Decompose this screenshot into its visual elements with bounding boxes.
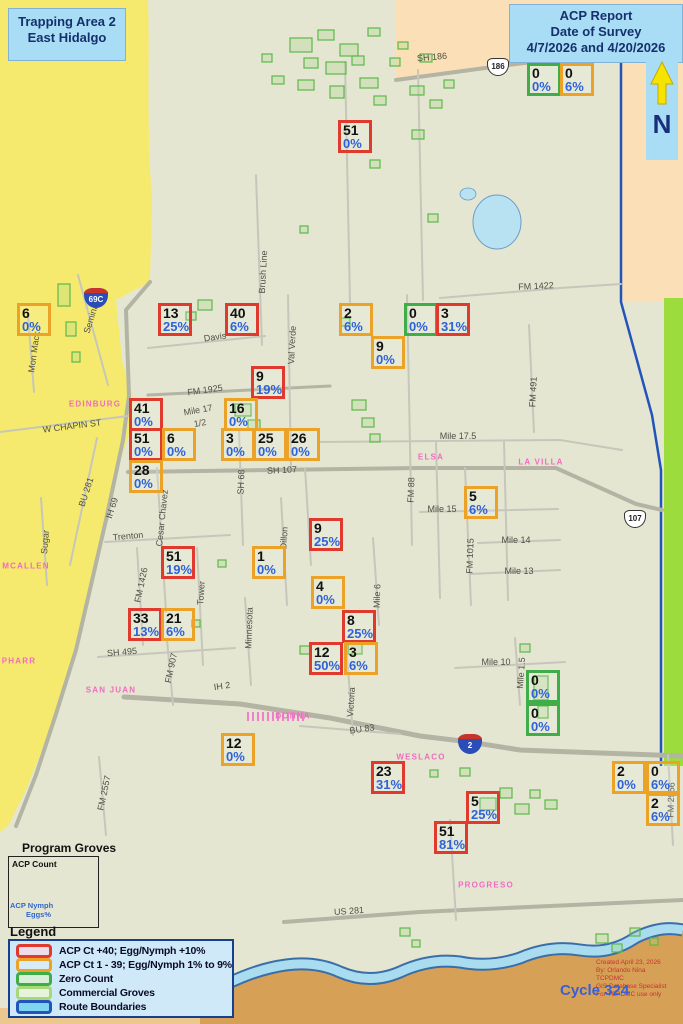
grove-polygon (412, 940, 420, 947)
egg-nymph-pct: 0% (531, 687, 557, 701)
egg-nymph-pct: 0% (167, 445, 193, 459)
egg-nymph-pct: 19% (166, 563, 192, 577)
grove-polygon (58, 284, 70, 306)
acp-count: 12 (314, 645, 340, 659)
trap-box-red: 1250% (309, 642, 343, 675)
trap-box-orange: 10% (252, 546, 286, 579)
trap-box-red: 925% (309, 518, 343, 551)
trap-box-green: 00% (526, 670, 560, 703)
grove-polygon (290, 38, 312, 52)
grove-polygon (66, 322, 76, 336)
legend-label: Zero Count (59, 973, 113, 985)
area-title-line1: Trapping Area 2 (9, 14, 125, 30)
legend-item-route: Route Boundaries (16, 1000, 232, 1014)
trap-box-red: 410% (129, 398, 163, 431)
acp-count: 51 (166, 549, 192, 563)
credits-line: By: Orlando Nina (596, 967, 682, 975)
egg-nymph-pct: 25% (314, 535, 340, 549)
trap-box-red: 5181% (434, 821, 468, 854)
legend-label: Route Boundaries (59, 1001, 146, 1013)
credits-line: Created April 23, 2026 (596, 959, 682, 967)
grove-polygon (400, 928, 410, 936)
report-dates: 4/7/2026 and 4/20/2026 (510, 40, 682, 56)
grove-polygon (398, 42, 408, 49)
trap-box-red: 3313% (128, 608, 162, 641)
egg-nymph-pct: 0% (316, 593, 342, 607)
acp-count: 1 (257, 549, 283, 563)
legend-swatch-green (16, 972, 52, 986)
grove-polygon (596, 934, 608, 943)
cycle-label: Cycle 324 (560, 982, 629, 999)
report-line1: ACP Report (510, 8, 682, 24)
city-label: ELSA (418, 453, 444, 462)
legend-label: ACP Ct 1 - 39; Egg/Nymph 1% to 9% (59, 959, 232, 971)
grove-polygon (360, 78, 378, 88)
egg-nymph-pct: 0% (291, 445, 317, 459)
egg-nymph-pct: 0% (22, 320, 48, 334)
trap-box-red: 510% (338, 120, 372, 153)
road-label: Mile 10 (481, 657, 510, 667)
egg-nymph-pct: 6% (166, 625, 192, 639)
grove-polygon (500, 788, 512, 798)
egg-nymph-pct: 0% (617, 778, 643, 792)
road-label: US 281 (334, 905, 365, 917)
egg-nymph-pct: 6% (230, 320, 256, 334)
trap-box-orange: 26% (646, 793, 680, 826)
egg-nymph-pct: 0% (226, 445, 252, 459)
inset-eggs-label: Eggs% (26, 910, 51, 919)
grove-polygon (272, 76, 284, 84)
trap-box-red: 331% (436, 303, 470, 336)
grove-polygon (410, 86, 424, 95)
egg-nymph-pct: 0% (134, 415, 160, 429)
trap-box-orange: 280% (129, 460, 163, 493)
road-label: Minnesota (243, 607, 254, 649)
acp-count: 51 (343, 123, 369, 137)
grove-polygon (300, 226, 308, 233)
trap-box-orange: 90% (371, 336, 405, 369)
egg-nymph-pct: 0% (258, 445, 284, 459)
road-label: SH 107 (267, 464, 298, 476)
road-label: FM 491 (527, 377, 539, 408)
city-label: PROGRESO (458, 881, 514, 890)
acp-count: 0 (532, 66, 558, 80)
acp-count: 28 (134, 463, 160, 477)
acp-count: 25 (258, 431, 284, 445)
road-label: FM 1422 (518, 280, 554, 292)
acp-count: 33 (133, 611, 159, 625)
acp-count: 0 (531, 673, 557, 687)
city-label: PHARR (2, 657, 36, 666)
legend-item-red: ACP Ct +40; Egg/Nymph +10% (16, 944, 232, 958)
legend-swatch-grove (16, 986, 52, 1000)
egg-nymph-pct: 6% (651, 810, 677, 824)
grove-polygon (368, 28, 380, 36)
egg-nymph-pct: 13% (133, 625, 159, 639)
trap-box-orange: 06% (560, 63, 594, 96)
grove-polygon (318, 30, 334, 40)
road-label: Mile 15 (427, 504, 456, 514)
acp-count: 0 (651, 764, 677, 778)
egg-nymph-pct: 31% (441, 320, 467, 334)
program-groves-title: Program Groves (22, 841, 116, 855)
road-label: Val Verde (286, 326, 298, 365)
trap-box-green: 00% (527, 63, 561, 96)
trap-box-orange: 26% (339, 303, 373, 336)
grove-polygon (330, 86, 344, 98)
acp-count: 12 (226, 736, 252, 750)
egg-nymph-pct: 0% (409, 320, 435, 334)
report-line2: Date of Survey (510, 24, 682, 40)
egg-nymph-pct: 19% (256, 383, 282, 397)
road-label: Mile 14 (501, 535, 530, 545)
trap-box-red: 1325% (158, 303, 192, 336)
road-label: Mile 6 (372, 584, 383, 608)
legend-box: ACP Ct +40; Egg/Nymph +10%ACP Ct 1 - 39;… (8, 939, 234, 1018)
road-label: Victoria (345, 687, 357, 717)
grove-polygon (262, 54, 272, 62)
grove-polygon (304, 58, 318, 68)
trap-box-orange: 36% (344, 642, 378, 675)
acp-count: 6 (22, 306, 48, 320)
legend-swatch-red (16, 944, 52, 958)
grove-polygon (340, 44, 358, 56)
acp-count: 0 (531, 706, 557, 720)
road-label: Mile 13 (504, 566, 533, 576)
city-label: SAN JUAN (86, 686, 137, 695)
north-label: N (646, 111, 678, 137)
acp-count: 0 (409, 306, 435, 320)
grove-polygon (298, 80, 314, 90)
egg-nymph-pct: 25% (347, 627, 373, 641)
trap-box-orange: 216% (161, 608, 195, 641)
acp-count: 3 (349, 645, 375, 659)
acp-count: 5 (469, 489, 495, 503)
area-title-box: Trapping Area 2 East Hidalgo (8, 8, 126, 61)
egg-nymph-pct: 25% (471, 808, 497, 822)
grove-polygon (370, 160, 380, 168)
acp-count: 8 (347, 613, 373, 627)
egg-nymph-pct: 0% (229, 415, 255, 429)
acp-count: 2 (344, 306, 370, 320)
grove-polygon (545, 800, 557, 809)
legend-item-grove: Commercial Groves (16, 986, 232, 1000)
acp-report-map: SH 186FM 1422SeminaryMon MackBrush LineV… (0, 0, 683, 1024)
acp-count: 3 (226, 431, 252, 445)
north-arrow-icon (646, 58, 678, 106)
trap-box-red: 525% (466, 791, 500, 824)
grove-polygon (428, 214, 438, 222)
acp-count: 2 (651, 796, 677, 810)
acp-count: 51 (439, 824, 465, 838)
grove-polygon (444, 80, 454, 88)
city-label: LA VILLA (518, 458, 563, 467)
legend-item-orange: ACP Ct 1 - 39; Egg/Nymph 1% to 9% (16, 958, 232, 972)
grove-polygon (218, 560, 226, 567)
road-label: FM 1015 (464, 538, 475, 574)
trap-box-red: 825% (342, 610, 376, 643)
city-label: DONNA (275, 712, 310, 721)
grove-polygon (520, 644, 530, 652)
acp-count: 26 (291, 431, 317, 445)
road-label: Sugar (39, 530, 51, 555)
legend-item-green: Zero Count (16, 972, 232, 986)
legend-swatch-orange (16, 958, 52, 972)
road-label: Mile 17.5 (440, 431, 477, 441)
grove-polygon (612, 944, 622, 952)
trap-box-orange: 250% (253, 428, 287, 461)
grove-polygon (460, 768, 470, 776)
acp-count: 51 (134, 431, 160, 445)
egg-nymph-pct: 0% (532, 80, 558, 94)
trap-box-orange: 60% (17, 303, 51, 336)
map-terrain (0, 0, 683, 1024)
acp-count: 9 (256, 369, 282, 383)
grove-polygon (72, 352, 80, 362)
acp-count: 9 (314, 521, 340, 535)
egg-nymph-pct: 0% (376, 353, 402, 367)
road-label: SH 68 (236, 469, 247, 494)
trap-box-red: 406% (225, 303, 259, 336)
grove-polygon (326, 62, 346, 74)
road-label: Tower (195, 581, 207, 606)
egg-nymph-pct: 6% (651, 778, 677, 792)
grove-polygon (362, 418, 374, 427)
legend-label: ACP Ct +40; Egg/Nymph +10% (59, 945, 205, 957)
trap-box-orange: 160% (224, 398, 258, 431)
city-label: MCALLEN (2, 562, 50, 571)
egg-nymph-pct: 6% (349, 659, 375, 673)
trap-box-orange: 56% (464, 486, 498, 519)
egg-nymph-pct: 6% (565, 80, 591, 94)
acp-count: 2 (617, 764, 643, 778)
legend-title: Legend (10, 924, 56, 939)
inset-nymph-label: ACP Nymph (10, 901, 53, 910)
legend-swatch-route (16, 1000, 52, 1014)
grove-polygon (430, 100, 442, 108)
grove-polygon (530, 790, 540, 798)
trap-box-orange: 40% (311, 576, 345, 609)
grove-polygon (650, 938, 658, 945)
trap-box-orange: 120% (221, 733, 255, 766)
acp-count: 6 (167, 431, 193, 445)
interstate-shield-number: 2 (458, 739, 482, 752)
egg-nymph-pct: 31% (376, 778, 402, 792)
acp-count: 41 (134, 401, 160, 415)
egg-nymph-pct: 25% (163, 320, 189, 334)
acp-count: 0 (565, 66, 591, 80)
grove-polygon (352, 400, 366, 410)
trap-box-orange: 60% (162, 428, 196, 461)
acp-count: 9 (376, 339, 402, 353)
grove-polygon (430, 770, 438, 777)
trap-box-green: 00% (404, 303, 438, 336)
inset-acp-count-label: ACP Count (12, 859, 57, 869)
city-label: EDINBURG (69, 400, 121, 409)
egg-nymph-pct: 0% (531, 720, 557, 734)
trap-box-green: 00% (526, 703, 560, 736)
egg-nymph-pct: 6% (344, 320, 370, 334)
trap-box-red: 2331% (371, 761, 405, 794)
egg-nymph-pct: 81% (439, 838, 465, 852)
grove-polygon (352, 56, 364, 65)
acp-count: 3 (441, 306, 467, 320)
legend-label: Commercial Groves (59, 987, 155, 999)
grove-polygon (198, 300, 212, 310)
egg-nymph-pct: 6% (469, 503, 495, 517)
grove-polygon (412, 130, 424, 139)
acp-count: 16 (229, 401, 255, 415)
trap-box-orange: 20% (612, 761, 646, 794)
grove-polygon (374, 96, 386, 105)
acp-count: 23 (376, 764, 402, 778)
egg-nymph-pct: 0% (257, 563, 283, 577)
acp-count: 13 (163, 306, 189, 320)
area-title-line2: East Hidalgo (9, 30, 125, 46)
north-arrow: N (646, 58, 678, 160)
trap-box-orange: 06% (646, 761, 680, 794)
grove-polygon (630, 928, 640, 936)
road-label: FM 88 (406, 477, 417, 503)
egg-nymph-pct: 0% (134, 445, 160, 459)
trap-box-orange: 30% (221, 428, 255, 461)
grove-polygon (390, 58, 400, 66)
grove-polygon (515, 804, 529, 814)
acp-count: 40 (230, 306, 256, 320)
acp-count: 4 (316, 579, 342, 593)
trap-box-red: 510% (129, 428, 163, 461)
egg-nymph-pct: 0% (343, 137, 369, 151)
trap-box-red: 919% (251, 366, 285, 399)
trap-box-red: 5119% (161, 546, 195, 579)
report-title-box: ACP Report Date of Survey 4/7/2026 and 4… (509, 4, 683, 63)
acp-count: 5 (471, 794, 497, 808)
egg-nymph-pct: 0% (134, 477, 160, 491)
egg-nymph-pct: 0% (226, 750, 252, 764)
grove-polygon (370, 434, 380, 442)
egg-nymph-pct: 50% (314, 659, 340, 673)
acp-count: 21 (166, 611, 192, 625)
interstate-shield-number: 69C (84, 293, 108, 306)
trap-box-orange: 260% (286, 428, 320, 461)
